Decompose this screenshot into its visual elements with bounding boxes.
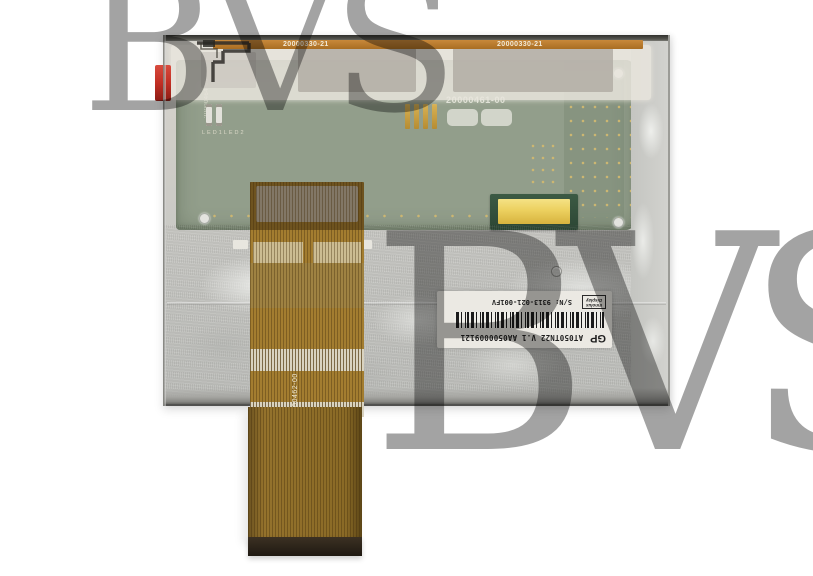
barcode [454, 312, 604, 328]
innolux-logo: Innolux Display [582, 295, 606, 309]
label-brand-row: Innolux Display S/N: 9313-021-001FV [443, 295, 606, 309]
tab-ic-film [298, 48, 416, 92]
white-paint-mark [233, 240, 248, 249]
gold-contact-bars [405, 104, 437, 129]
led1-label: LED1 [202, 130, 224, 136]
top-flex-part-number-right: 20000330-21 [497, 41, 543, 49]
pcb-white-pad [481, 109, 512, 126]
gold-bar [405, 104, 410, 129]
flex-light-window [253, 242, 303, 263]
flex-haze-overlay [250, 263, 364, 308]
pcb-white-pad [447, 109, 478, 126]
module-bottom-edge [163, 388, 670, 406]
flex-connector-tip [248, 537, 362, 556]
gold-contact-pad-surface [498, 199, 570, 224]
tab-ic-film [453, 48, 613, 92]
gold-bar [414, 104, 419, 129]
flex-stiffener-tape [256, 186, 358, 222]
led2-label: LED2 [224, 130, 246, 136]
via-dot-grid [528, 140, 558, 190]
gold-bar [423, 104, 428, 129]
module-right-edge [668, 35, 670, 406]
label-model-row: GP AT050TN22 V.1 AA0500009121 [443, 332, 606, 344]
brand-line2: Display [586, 297, 602, 302]
embossed-circle-mark [551, 266, 562, 277]
flex-cable-tail [248, 407, 362, 538]
module-left-edge [163, 35, 166, 406]
flex-light-window [313, 242, 361, 263]
label-vendor-mark: GP [590, 332, 606, 344]
corner-flex-trace [191, 38, 291, 130]
flex-exposed-trace-band [250, 349, 364, 371]
lcd-module: 20000330-21 20000330-21 20000461-00 [163, 35, 670, 406]
label-model-number: AT050TN22 V.1 AA0500009121 [460, 333, 583, 342]
flex-cable: 20000462-00 [250, 230, 364, 407]
gold-bar [432, 104, 437, 129]
product-photo: 20000330-21 20000330-21 20000461-00 [0, 0, 813, 576]
flex-cable-pcb-attach [250, 182, 364, 232]
product-label: GP AT050TN22 V.1 AA0500009121 Innolux Di… [437, 291, 612, 348]
serial-number: S/N: 9313-021-001FV [492, 298, 572, 306]
led-silkscreen: LED1LED2 [202, 130, 246, 136]
